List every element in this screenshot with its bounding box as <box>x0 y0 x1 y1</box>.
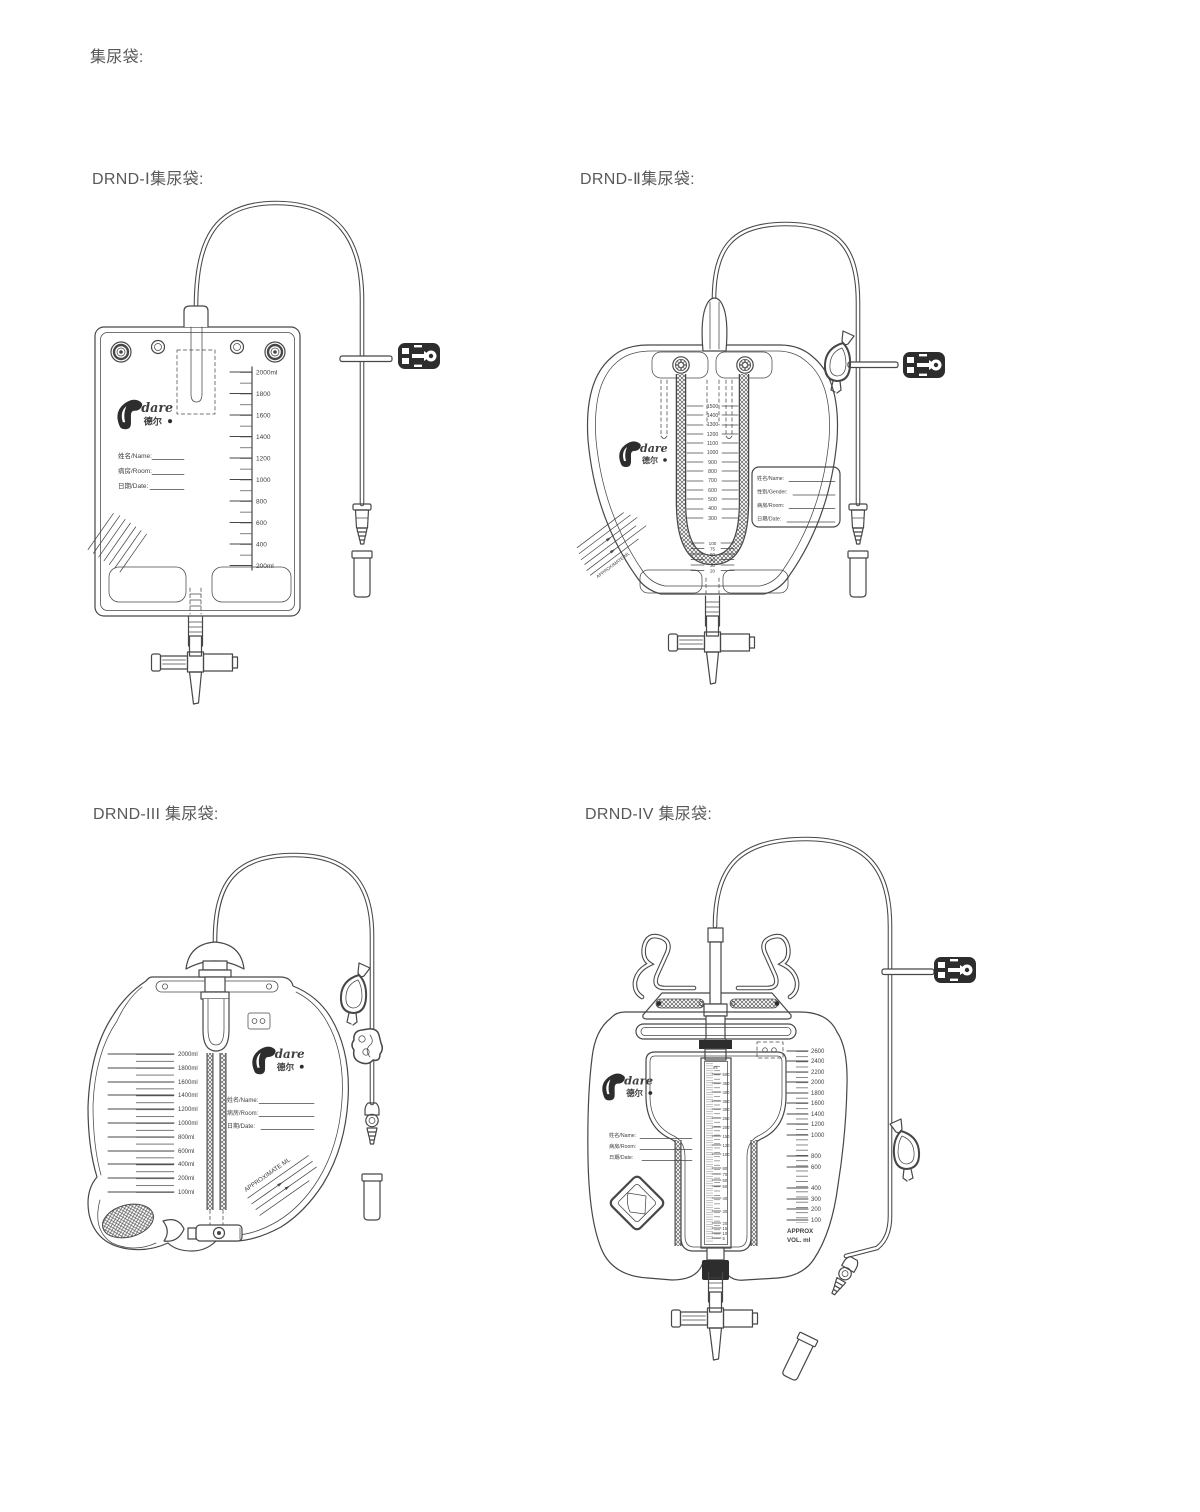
hanger-hook <box>635 936 694 997</box>
outlet-valve <box>152 616 238 704</box>
vent <box>248 1013 270 1029</box>
dare-mark-icon <box>117 400 142 429</box>
scale-label: 30 <box>710 563 716 568</box>
tube-crossbar <box>882 969 934 975</box>
scale-label: 2000ml <box>256 370 278 377</box>
catheter-connector <box>353 504 371 544</box>
vent <box>757 1042 783 1058</box>
scale-label: 500 <box>708 497 717 503</box>
dare-mark-icon <box>602 1074 625 1101</box>
scale-label: 200ml <box>256 563 274 570</box>
bag-body: ml 500 450 400 350 300 250 200 150 120 1… <box>588 1012 847 1280</box>
inlet-port <box>702 298 727 351</box>
outlet-valve <box>669 596 755 684</box>
hanger-hook <box>738 936 797 997</box>
anti-reflux-channel <box>210 1053 223 1225</box>
scale-label: 1400 <box>256 434 271 441</box>
corner-grommet <box>265 342 285 362</box>
scale-label: 1000 <box>256 477 271 484</box>
protective-cap <box>848 551 868 597</box>
scale-label: 400 <box>256 542 267 549</box>
field-gender: 性别/Gender: <box>757 488 788 496</box>
scale-label: 200ml <box>178 1176 194 1182</box>
scale-label: 1200 <box>707 432 719 438</box>
scale-label: 600 <box>708 488 717 494</box>
scale-label: 2000ml <box>178 1052 198 1058</box>
product-drnd2: 1500 1400 1300 1200 1100 1000 900 800 70… <box>572 224 945 684</box>
scale-label: 20 <box>710 569 716 574</box>
patient-info: 姓名/Name: 病房/Room: 日期/Date: <box>118 451 184 490</box>
drain-neck <box>707 1248 724 1260</box>
hanger-grommet <box>673 357 689 373</box>
bottom-seam <box>212 567 291 602</box>
volume-scale: 2000ml 1800 1600 1400 1200 1000 800 600 … <box>230 367 278 570</box>
field-date: 日期/Date: <box>757 516 781 523</box>
slide-clamp <box>934 957 976 983</box>
scale-label: 700 <box>708 478 717 484</box>
catalog-page: 集尿袋: DRND-Ⅰ集尿袋: DRND-Ⅱ集尿袋: DRND-III 集尿袋:… <box>0 0 1200 1512</box>
meter-label: 100 <box>723 1152 731 1157</box>
brand-logo: dare 德尔 <box>252 1047 305 1075</box>
tube-crossbar <box>340 356 392 362</box>
scale-label: 2600 <box>811 1049 825 1055</box>
product-drnd3: 2000ml 1800ml 1600ml 1400ml 1200ml 1000m… <box>88 855 382 1251</box>
scale-label: 2200 <box>811 1070 825 1076</box>
scale-label: 100 <box>709 541 717 546</box>
hanger-grommet <box>231 341 244 354</box>
scale-label: 800 <box>811 1154 822 1160</box>
meter-label: 80 <box>723 1166 728 1171</box>
sample-port-diamond <box>609 1175 666 1232</box>
field-name: 姓名/Name: <box>227 1096 259 1104</box>
scale-label: 900 <box>708 460 717 466</box>
scale-label: 300 <box>708 516 717 522</box>
protective-cap <box>362 1174 382 1220</box>
bottom-seam <box>723 570 788 593</box>
hanger-grommet <box>737 357 753 373</box>
scale-label: 100ml <box>178 1190 194 1196</box>
product-drnd4: ml 500 450 400 350 300 250 200 150 120 1… <box>588 839 976 1382</box>
brand-cjk: 德尔 <box>642 455 658 465</box>
scale-label: 600ml <box>178 1149 194 1155</box>
meter-label: 60 <box>723 1178 728 1183</box>
corner-grommet <box>111 342 131 362</box>
scale-label: 1000 <box>811 1133 825 1139</box>
field-room: 病房/Room: <box>609 1142 636 1150</box>
meter-label: 300 <box>723 1107 731 1112</box>
approx-label: VOL. ml <box>787 1237 811 1244</box>
scale-label: 1600 <box>811 1101 825 1107</box>
meter-label: 200 <box>723 1125 731 1130</box>
urine-meter: ml 500 450 400 350 300 250 200 150 120 1… <box>701 1058 731 1248</box>
dare-mark-icon <box>619 441 641 467</box>
scale-label: 1100 <box>707 441 718 447</box>
outlet-valve <box>188 1225 242 1241</box>
meter-unit: ml <box>713 1065 717 1070</box>
scale-label: 2000 <box>811 1080 825 1086</box>
drnd4-label: DRND-IV 集尿袋: <box>585 805 712 823</box>
patient-info: 姓名/Name: 病房/Room: 日期/Date: <box>227 1096 314 1130</box>
drain-pocket <box>98 1199 184 1248</box>
outlet-valve <box>672 1272 758 1360</box>
drnd3-label: DRND-III 集尿袋: <box>93 805 219 823</box>
scale-label: 800 <box>256 499 267 506</box>
field-room: 病房/Room: <box>757 501 784 509</box>
hanging-clamp <box>341 963 370 1025</box>
scale-label: 600 <box>811 1165 822 1171</box>
meter-label: 450 <box>723 1081 731 1086</box>
approx-label: APPROX <box>787 1228 814 1235</box>
tube-crossbar <box>848 362 898 368</box>
product-drnd1: 2000ml 1800 1600 1400 1200 1000 800 600 … <box>88 203 440 704</box>
dare-mark-icon <box>252 1047 275 1075</box>
diagram-canvas: 集尿袋: DRND-Ⅰ集尿袋: DRND-Ⅱ集尿袋: DRND-III 集尿袋:… <box>0 0 1200 1512</box>
scale-label: 1600 <box>256 413 271 420</box>
inlet-chamber <box>199 961 231 1051</box>
scale-label: 300 <box>811 1197 822 1203</box>
slide-clamp <box>903 352 945 378</box>
bag-body: 2000ml 1800ml 1600ml 1400ml 1200ml 1000m… <box>88 942 348 1251</box>
field-room: 病房/Room: <box>118 466 152 475</box>
scale-label: 1500 <box>707 404 719 410</box>
meter-label: 150 <box>723 1134 731 1139</box>
field-date: 日期/Date: <box>609 1154 633 1161</box>
scale-label: 1200ml <box>178 1107 198 1113</box>
volume-scale: 1500 1400 1300 1200 1100 1000 900 800 70… <box>687 404 738 522</box>
anti-reflux-channel <box>681 374 744 560</box>
scale-label: 400 <box>708 506 717 512</box>
scale-label: 400ml <box>178 1162 194 1168</box>
bag-body: 2000ml 1800 1600 1400 1200 1000 800 600 … <box>88 306 300 616</box>
hanging-clamp <box>825 331 854 393</box>
brand-logo: dare 德尔 <box>619 441 667 467</box>
meter-label: 120 <box>723 1143 731 1148</box>
brand-cjk: 德尔 <box>143 416 162 427</box>
field-name: 姓名/Name: <box>609 1131 636 1139</box>
inlet-collar <box>184 306 208 327</box>
slide-clamp <box>398 343 440 369</box>
inlet-stack <box>704 928 727 1040</box>
scale-label: 2400 <box>811 1059 825 1065</box>
brand-latin: dare <box>141 400 173 415</box>
brand-cjk: 德尔 <box>276 1061 295 1072</box>
approx-label: APPROXIMATE ML <box>595 551 631 580</box>
approx-note: APPROXIMATE ML <box>241 1147 320 1216</box>
hook-tab <box>163 1220 184 1242</box>
scale-label: 1400 <box>811 1112 825 1118</box>
field-date: 日期/Date: <box>227 1122 255 1130</box>
meter-label: 5 <box>723 1236 726 1241</box>
page-title: 集尿袋: <box>90 48 144 66</box>
pinch-clamp <box>352 1029 382 1064</box>
brand-latin: dare <box>624 1074 653 1088</box>
volume-scale: 2000ml 1800ml 1600ml 1400ml 1200ml 1000m… <box>108 1052 198 1196</box>
anti-reflux-chamber <box>177 350 215 414</box>
scale-label: 50 <box>710 552 716 557</box>
meter-label: 50 <box>723 1184 728 1189</box>
field-name: 姓名/Name: <box>118 451 152 460</box>
scale-label: 400 <box>811 1186 822 1192</box>
bag-body: 1500 1400 1300 1200 1100 1000 900 800 70… <box>572 298 840 594</box>
scale-label: 1200 <box>811 1122 825 1128</box>
hanging-clamp <box>890 1119 919 1181</box>
field-name: 姓名/Name: <box>757 474 784 482</box>
scale-label: 800ml <box>178 1135 194 1141</box>
catheter-connector <box>849 504 867 544</box>
inlet-collar <box>699 1040 732 1049</box>
scale-label: 1300 <box>707 422 719 428</box>
scale-label: 1800 <box>256 391 271 398</box>
scale-label: 1000ml <box>178 1121 198 1127</box>
field-date: 日期/Date: <box>118 482 149 490</box>
drnd2-label: DRND-Ⅱ集尿袋: <box>580 170 695 188</box>
hanger-grommet <box>152 341 165 354</box>
scale-label: 40 <box>710 558 716 563</box>
scale-label: 1600ml <box>178 1080 198 1086</box>
scale-label: 600 <box>256 520 267 527</box>
catheter-connector <box>365 1103 379 1144</box>
meter-label: 500 <box>723 1072 731 1077</box>
meter-label: 70 <box>723 1172 728 1177</box>
volume-scale: 2600 2400 2200 2000 1800 1600 1400 1200 … <box>787 1049 825 1244</box>
scale-label: 1200 <box>256 456 271 463</box>
meter-label: 400 <box>723 1090 731 1095</box>
scale-label: 800 <box>708 469 717 475</box>
meter-label: 30 <box>723 1209 728 1214</box>
scale-label: 1000 <box>707 450 719 456</box>
inlet-tube <box>196 203 392 504</box>
bottom-seam <box>109 567 186 602</box>
brand-cjk: 德尔 <box>626 1088 643 1098</box>
drnd1-label: DRND-Ⅰ集尿袋: <box>92 170 204 188</box>
field-room: 病房/Room: <box>227 1109 259 1117</box>
scale-label: 200 <box>811 1207 822 1213</box>
inlet-tube <box>715 839 934 1256</box>
meter-label: 250 <box>723 1116 731 1121</box>
protective-cap <box>352 551 372 597</box>
scale-label: 1400ml <box>178 1093 198 1099</box>
brand-logo: dare 德尔 <box>117 400 173 429</box>
drain-sleeve <box>702 1260 729 1280</box>
meter-label: 350 <box>723 1099 731 1104</box>
brand-latin: dare <box>640 442 668 455</box>
meter-label: 40 <box>723 1196 728 1201</box>
scale-label: 100 <box>811 1218 822 1224</box>
scale-label: 1800ml <box>178 1066 198 1072</box>
catheter-connector <box>827 1255 860 1298</box>
scale-label: 1400 <box>707 413 719 419</box>
diagonal-hatch <box>88 512 146 572</box>
brand-latin: dare <box>275 1047 305 1061</box>
scale-label: 75 <box>710 547 716 552</box>
scale-label: 1800 <box>811 1091 825 1097</box>
protective-cap <box>780 1332 818 1382</box>
